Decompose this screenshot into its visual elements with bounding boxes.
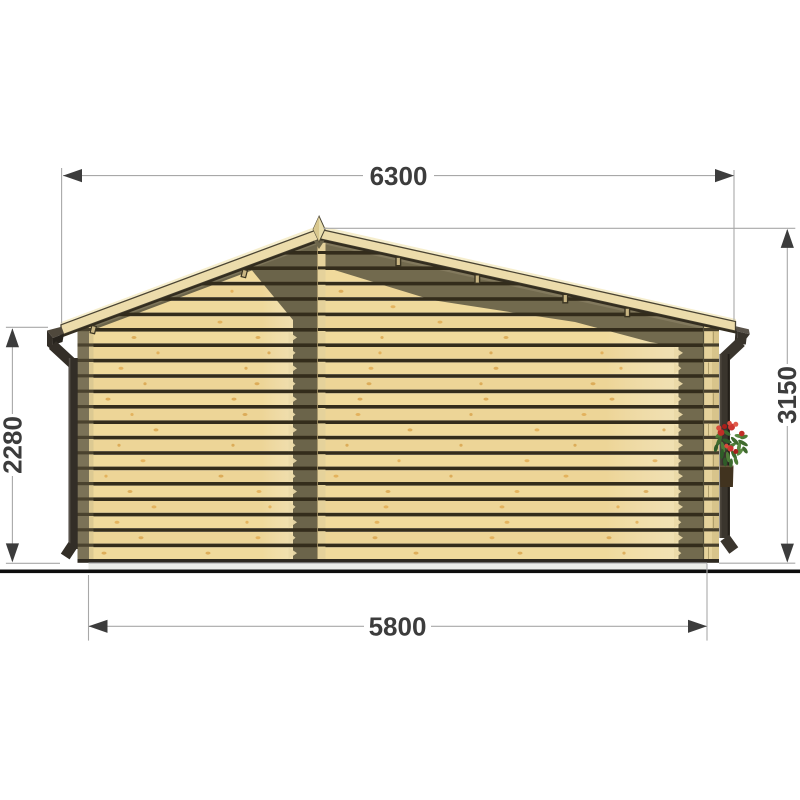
svg-text:6300: 6300 — [370, 161, 428, 191]
svg-text:3150: 3150 — [772, 366, 800, 424]
svg-text:2280: 2280 — [0, 416, 27, 474]
svg-text:5800: 5800 — [369, 612, 427, 642]
